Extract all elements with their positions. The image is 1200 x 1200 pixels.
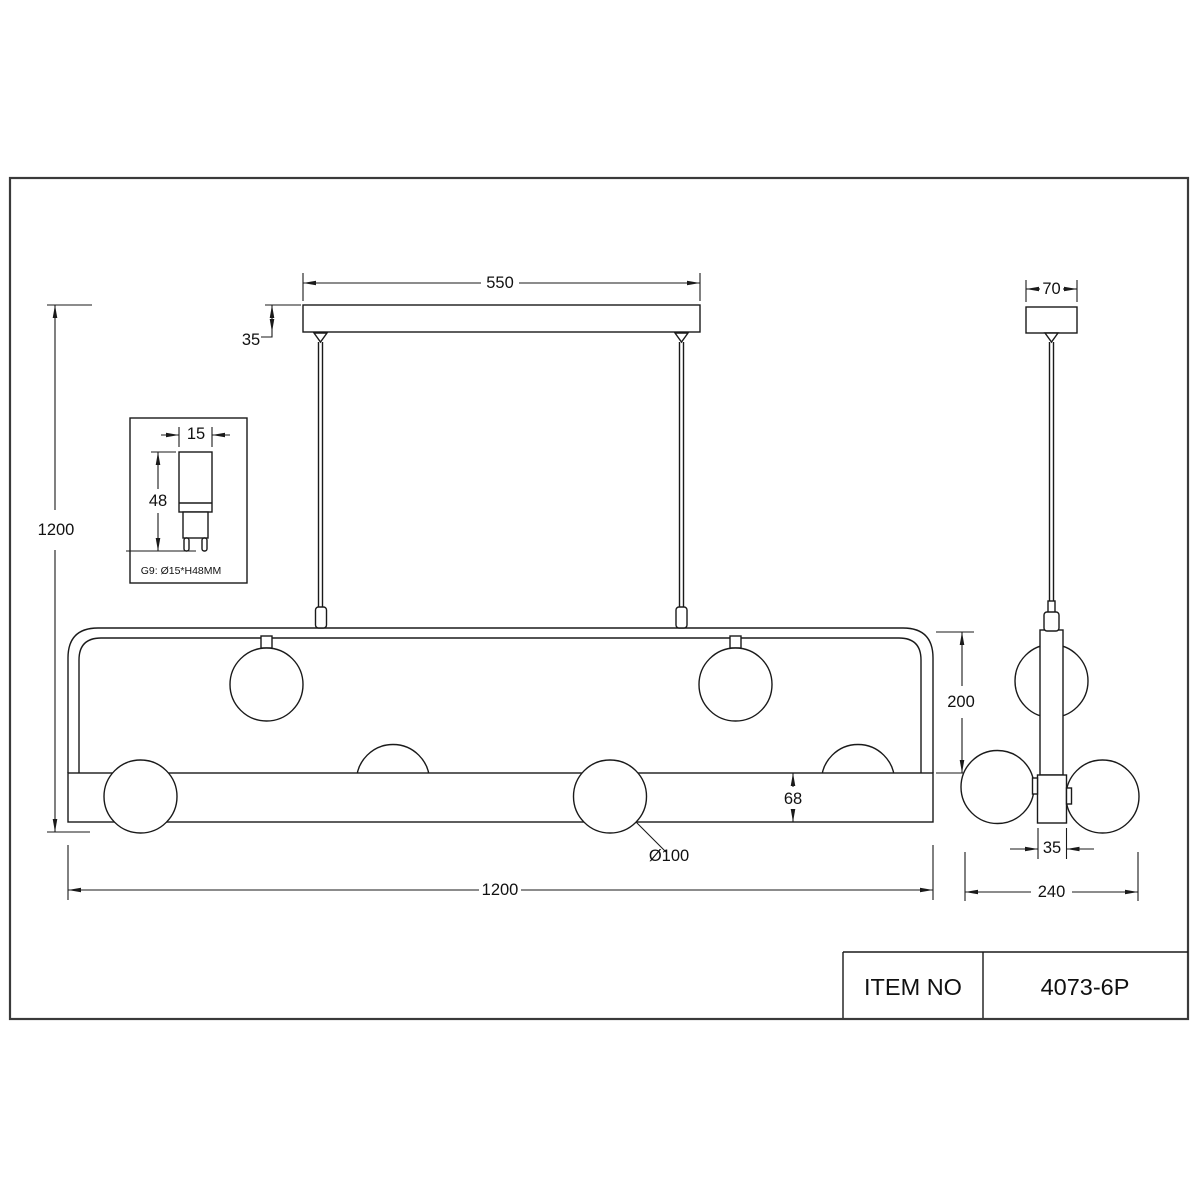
side-body xyxy=(1040,630,1063,775)
title-block-value: 4073-6P xyxy=(1041,974,1130,1000)
bulb-caption: G9: Ø15*H48MM xyxy=(141,565,222,577)
frame-inner-line xyxy=(79,638,921,773)
globe-socket-right xyxy=(1067,788,1072,804)
globe-stem-left xyxy=(261,636,272,648)
globe-front-right xyxy=(574,760,647,833)
bar-front xyxy=(68,773,933,822)
front-view: 550 35 xyxy=(38,273,975,900)
bulb-pin-left xyxy=(184,538,189,551)
dim-text-bulb-height: 48 xyxy=(149,492,167,510)
suspension-wire-left xyxy=(314,333,327,607)
wire-body-fitting xyxy=(1044,612,1059,631)
dim-text-fixture-length: 1200 xyxy=(482,881,519,899)
technical-drawing: 550 35 xyxy=(0,0,1200,1200)
canopy-front xyxy=(303,305,700,332)
globe-front-left xyxy=(104,760,177,833)
dim-canopy-thickness: 35 xyxy=(242,305,301,349)
wire-cone-fitting xyxy=(1045,333,1058,342)
dim-text-overall-depth: 240 xyxy=(1038,883,1066,901)
side-globe-right xyxy=(1066,760,1139,833)
dim-text-canopy-width: 550 xyxy=(486,274,514,292)
wire-cone-fitting xyxy=(675,333,688,342)
page-border xyxy=(10,178,1188,1019)
rail-globe-left xyxy=(230,648,303,721)
side-bar-section xyxy=(1038,775,1067,823)
wire-cone-fitting xyxy=(314,333,327,342)
suspension-wire-side xyxy=(1045,333,1058,601)
dim-canopy-width: 550 xyxy=(303,273,700,301)
leader-globe-diameter: Ø100 xyxy=(636,822,689,865)
drawing-sheet: 550 35 xyxy=(0,0,1200,1200)
leader-tick xyxy=(261,332,272,337)
dim-text-side-canopy-width: 70 xyxy=(1042,280,1060,298)
wire-rail-fitting-right xyxy=(676,607,687,628)
wire-rail-fitting-left xyxy=(316,607,327,628)
rail-globe-right xyxy=(699,648,772,721)
title-block-label: ITEM NO xyxy=(864,974,962,1000)
dim-bulb-width: 15 xyxy=(161,425,230,447)
title-block: ITEM NO 4073-6P xyxy=(843,952,1188,1018)
bulb-base xyxy=(183,512,208,538)
suspension-wire-right xyxy=(675,333,688,607)
side-view: 70 35 xyxy=(961,280,1139,901)
side-globe-left xyxy=(961,751,1034,824)
dim-text-globe-diameter: Ø100 xyxy=(649,847,689,865)
globe-socket-left xyxy=(1033,778,1038,794)
bulb-pin-right xyxy=(202,538,207,551)
dim-text-bulb-width: 15 xyxy=(187,425,205,443)
dim-text-canopy-thickness: 35 xyxy=(242,331,260,349)
dim-bulb-height: 48 xyxy=(149,452,176,551)
dim-side-canopy-width: 70 xyxy=(1026,280,1077,302)
canopy-side xyxy=(1026,307,1077,333)
dim-text-bar-thickness: 68 xyxy=(784,790,802,808)
dim-frame-height: 200 xyxy=(936,632,975,773)
frame-outer-line xyxy=(68,628,933,773)
dim-text-bar-depth: 35 xyxy=(1043,839,1061,857)
dim-fixture-length: 1200 xyxy=(68,845,933,900)
dim-text-frame-height: 200 xyxy=(947,693,975,711)
dim-text-overall-height: 1200 xyxy=(38,521,75,539)
globe-stem-right xyxy=(730,636,741,648)
dim-overall-height: 1200 xyxy=(38,305,92,832)
wire-neck xyxy=(1048,601,1055,613)
dim-overall-depth: 240 xyxy=(965,852,1138,901)
dim-bar-depth: 35 xyxy=(1010,828,1094,859)
bulb-detail: 15 48 G9: Ø15*H48MM xyxy=(126,418,247,583)
